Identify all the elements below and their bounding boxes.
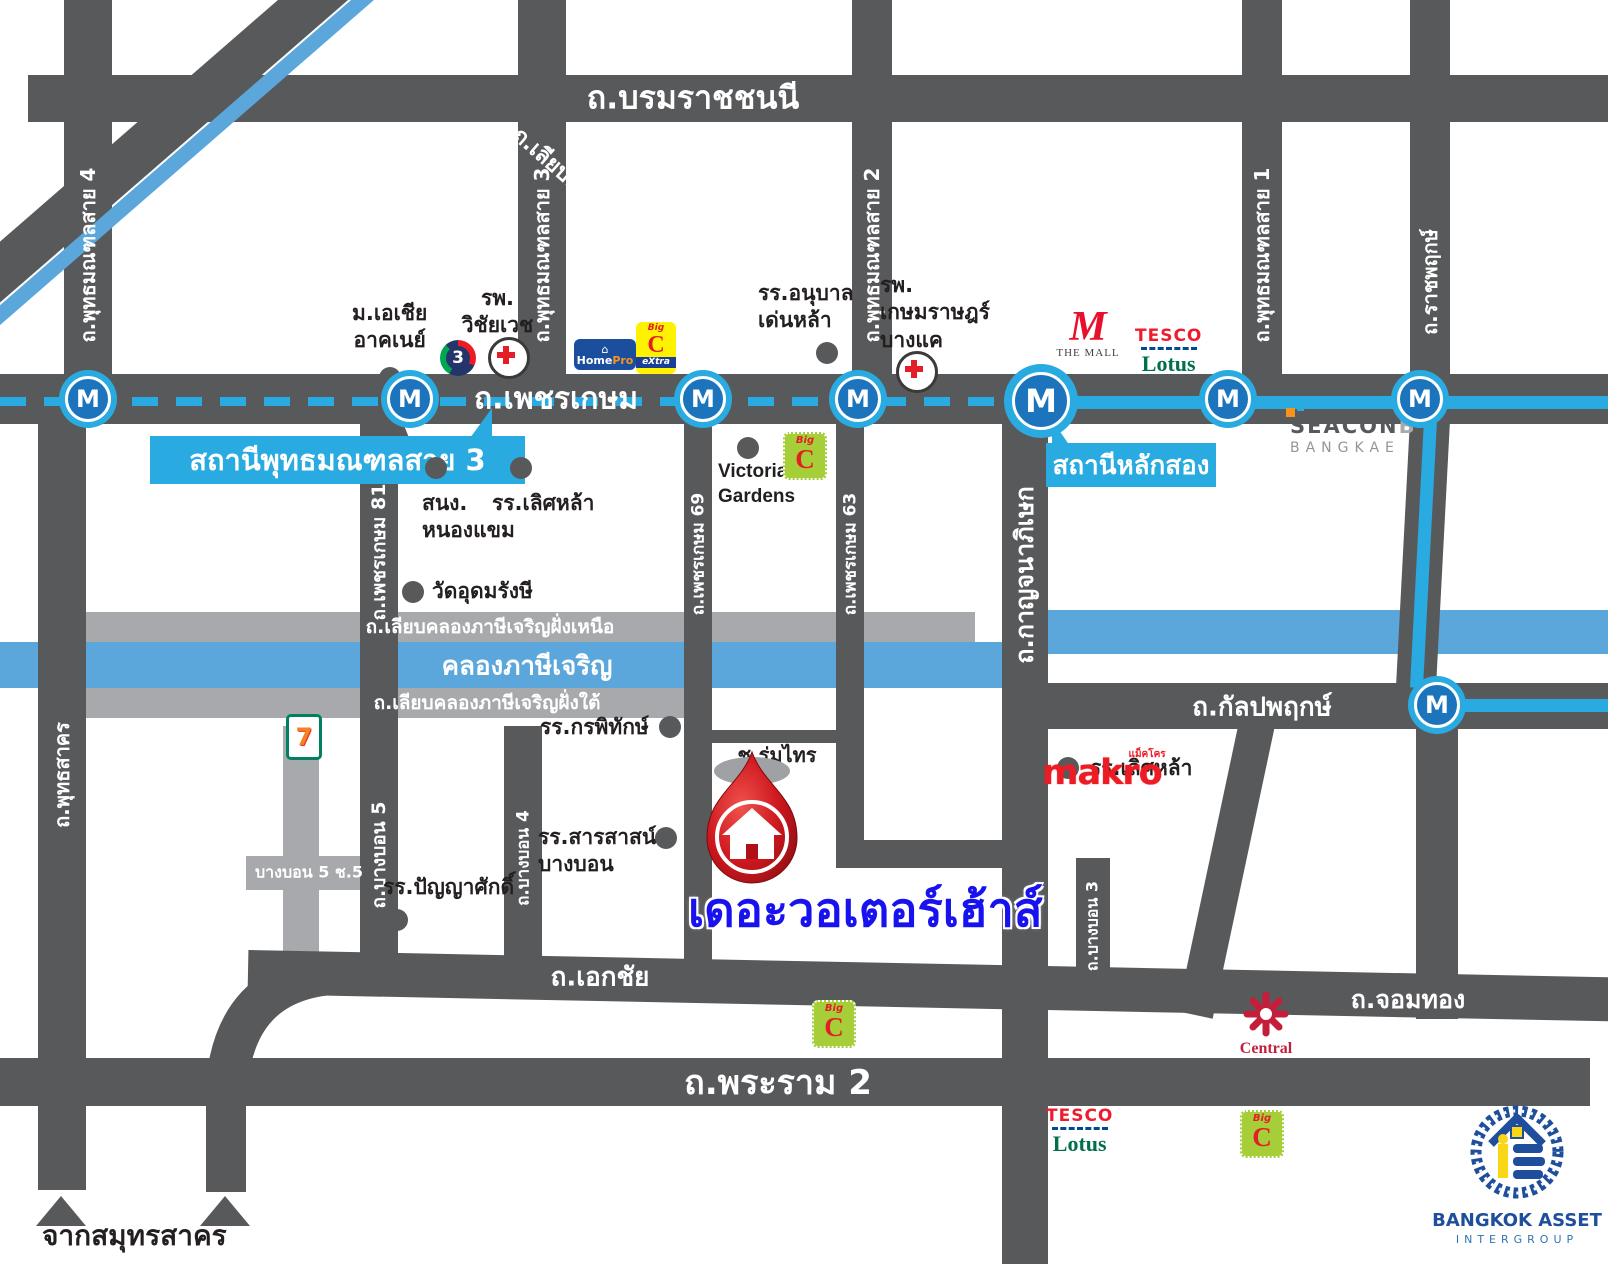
poi-dot-victoria-gardens: [737, 437, 759, 459]
metro-station-marker: M: [1397, 376, 1443, 422]
metro-station-marker: M: [387, 376, 433, 422]
metro-station-marker: M: [835, 376, 881, 422]
location-pin: [696, 748, 808, 890]
callout-station-laksong: สถานีหลักสอง: [1046, 443, 1216, 487]
bigc-logo-rama2: BigC: [1240, 1110, 1284, 1158]
road-connector-l: [838, 840, 1012, 868]
poi-dot-kornpitak: [659, 716, 681, 738]
channel3-logo-icon: 3: [440, 340, 476, 376]
road-label-phutthamonthon-sai1: ถ.พุทธมณฑลสาย 1: [1246, 168, 1278, 343]
road-phetkasem63: [836, 424, 864, 868]
road-label-kanlapaphruek: ถ.กัลปพฤกษ์: [1192, 687, 1332, 728]
canal-label-phasi-charoen: คลองภาษีเจริญ: [442, 646, 613, 687]
metro-station-marker: M: [680, 376, 726, 422]
bigc-logo-ekkachai: BigC: [812, 1000, 856, 1048]
poi-kornpitak-school: รร.กรพิทักษ์: [540, 714, 649, 741]
bangkok-asset-wreath-icon: [1465, 1102, 1569, 1206]
hospital-cross-icon-kasemrad: [896, 351, 938, 393]
bangkok-asset-logo: BANGKOK ASSET INTERGROUP: [1432, 1102, 1602, 1245]
road-label-ratchaphruek: ถ.ราชพฤกษ์: [1414, 229, 1446, 335]
poi-dot-sarasas: [655, 827, 677, 849]
metro-station-marker-lak-song: M: [1012, 372, 1070, 430]
homepro-logo: ⌂ HomePro: [574, 339, 636, 370]
seacon-squares-icon2: [1297, 404, 1304, 411]
poi-dot-lertlah-phetkasem: [510, 457, 532, 479]
road-label-phetkasem63: ถ.เพชรเกษม 63: [837, 493, 864, 616]
bigc-logo-victoria: BigC: [783, 432, 827, 480]
road-label-phutthasakhon: ถ.พุทธสาคร: [46, 722, 78, 828]
bigc-extra-logo: Big C eXtra: [636, 322, 676, 374]
poi-asia-university: ม.เอเชียอาคเนย์: [352, 300, 427, 355]
road-label-phetkasem: ถ.เพชรเกษม: [474, 376, 638, 423]
central-logo: Central: [1238, 990, 1294, 1057]
callout-station-sai3: สถานีพุทธมณฑลสาย 3: [150, 436, 525, 484]
poi-dot-panyasak: [386, 909, 408, 931]
road-label-khlong-north: ถ.เลียบคลองภาษีเจริญฝั่งเหนือ: [366, 612, 615, 642]
road-label-chomthong: ถ.จอมทอง: [1351, 980, 1465, 1020]
road-ratchaphruek-north: [1410, 0, 1450, 424]
the-mall-logo: M THE MALL: [1052, 306, 1124, 359]
bangkok-location-map: สถานีพุทธมณฑลสาย 3 สถานีหลักสอง M M M M …: [0, 0, 1608, 1264]
road-label-phutthamonthon-sai4: ถ.พุทธมณฑลสาย 4: [72, 168, 104, 343]
poi-dot-denla: [816, 342, 838, 364]
project-name-label: เดอะวอเตอร์เฮ้าส์: [688, 872, 1043, 947]
seacon-bangkae-logo: SEACONB BANGKAE: [1290, 416, 1417, 455]
metro-station-marker: M: [1205, 376, 1251, 422]
road-label-bangbon5-soi5: บางบอน 5 ช.5: [255, 861, 363, 886]
poi-dot-wat-udom-rangsi: [402, 581, 424, 603]
poi-sarasas-school: รร.สารสาสน์บางบอน: [538, 824, 656, 879]
hospital-cross-icon-wichaivej: [488, 337, 530, 379]
road-label-bangbon3: ถ.บางบอน 3: [1081, 881, 1106, 971]
poi-wat-udom-rangsi: วัดอุดมรังษี: [432, 578, 533, 605]
central-flower-icon: [1242, 990, 1290, 1038]
road-ekkachai-curve: [160, 930, 390, 1140]
tesco-lotus-logo-phetkasem: TESCOLotus: [1135, 326, 1202, 377]
poi-dot-nong-khaem: [425, 457, 447, 479]
road-label-kanchanaphisek: ถ.กาญจนาภิเษก: [1005, 486, 1045, 664]
seacon-squares-icon: [1286, 408, 1295, 417]
road-label-phetkasem69: ถ.เพชรเกษม 69: [685, 493, 712, 616]
road-label-phetkasem81: ถ.เพชรเกษม 81: [364, 484, 394, 621]
metro-station-marker: M: [65, 376, 111, 422]
canal-phasi-charoen-east: [1032, 610, 1608, 654]
road-label-rama2: ถ.พระราม 2: [684, 1055, 872, 1109]
makro-logo: แม็คโคร makro: [1042, 756, 1162, 791]
road-label-ekkachai: ถ.เอกชัย: [551, 957, 650, 998]
seven-eleven-logo: 7: [286, 714, 322, 760]
tesco-lotus-logo-rama2: TESCOLotus: [1046, 1106, 1113, 1157]
poi-wichaivej-hospital: รพ.วิชัยเวช: [455, 285, 540, 340]
poi-kasemrad-hospital: รพ.เกษมราษฎร์บางแค: [880, 272, 990, 354]
road-label-borommaratchachonnani: ถ.บรมราชชนนี: [587, 73, 799, 124]
poi-panyasak-school: รร.ปัญญาศักดิ์: [383, 874, 514, 901]
poi-denla-kindergarten: รร.อนุบาลเด่นหล้า: [758, 280, 854, 335]
label-from-samut-sakhon: จากสมุทรสาคร: [42, 1214, 227, 1258]
metro-line-solid-phetkasem: [1041, 396, 1608, 409]
poi-lertlah-school-phetkasem: รร.เลิศหล้า: [492, 490, 594, 517]
metro-station-marker: M: [1414, 682, 1460, 728]
